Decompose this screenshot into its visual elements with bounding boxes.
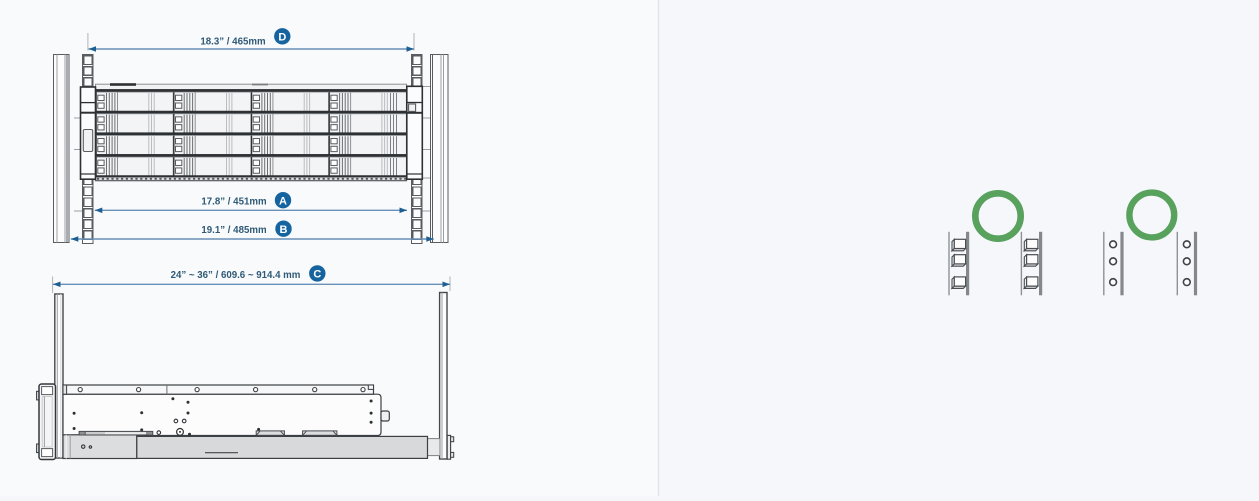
svg-text:D: D xyxy=(278,31,286,43)
svg-text:C: C xyxy=(313,269,321,281)
svg-text:B: B xyxy=(280,224,288,236)
svg-text:24” ~ 36” / 609.6 ~ 914.4 mm: 24” ~ 36” / 609.6 ~ 914.4 mm xyxy=(171,270,301,281)
svg-text:19.1” / 485mm: 19.1” / 485mm xyxy=(201,225,267,236)
svg-text:18.3” / 465mm: 18.3” / 465mm xyxy=(200,36,266,47)
svg-text:17.8” / 451mm: 17.8” / 451mm xyxy=(201,196,267,207)
svg-text:A: A xyxy=(279,195,287,207)
